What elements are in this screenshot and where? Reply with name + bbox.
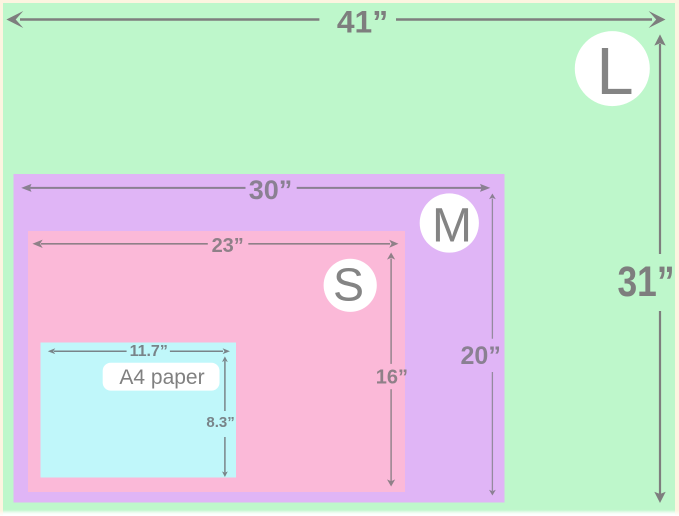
svg-text:L: L bbox=[596, 34, 633, 109]
svg-text:31”: 31” bbox=[618, 259, 675, 306]
svg-text:20”: 20” bbox=[461, 342, 501, 370]
svg-text:A4 paper: A4 paper bbox=[119, 366, 204, 389]
svg-text:8.3”: 8.3” bbox=[206, 414, 234, 431]
svg-text:16”: 16” bbox=[376, 366, 408, 388]
svg-text:M: M bbox=[432, 200, 472, 253]
svg-text:41”: 41” bbox=[337, 4, 388, 40]
svg-text:11.7”: 11.7” bbox=[130, 343, 168, 360]
svg-text:30”: 30” bbox=[249, 175, 293, 205]
svg-text:23”: 23” bbox=[212, 235, 244, 257]
svg-text:S: S bbox=[333, 258, 364, 310]
